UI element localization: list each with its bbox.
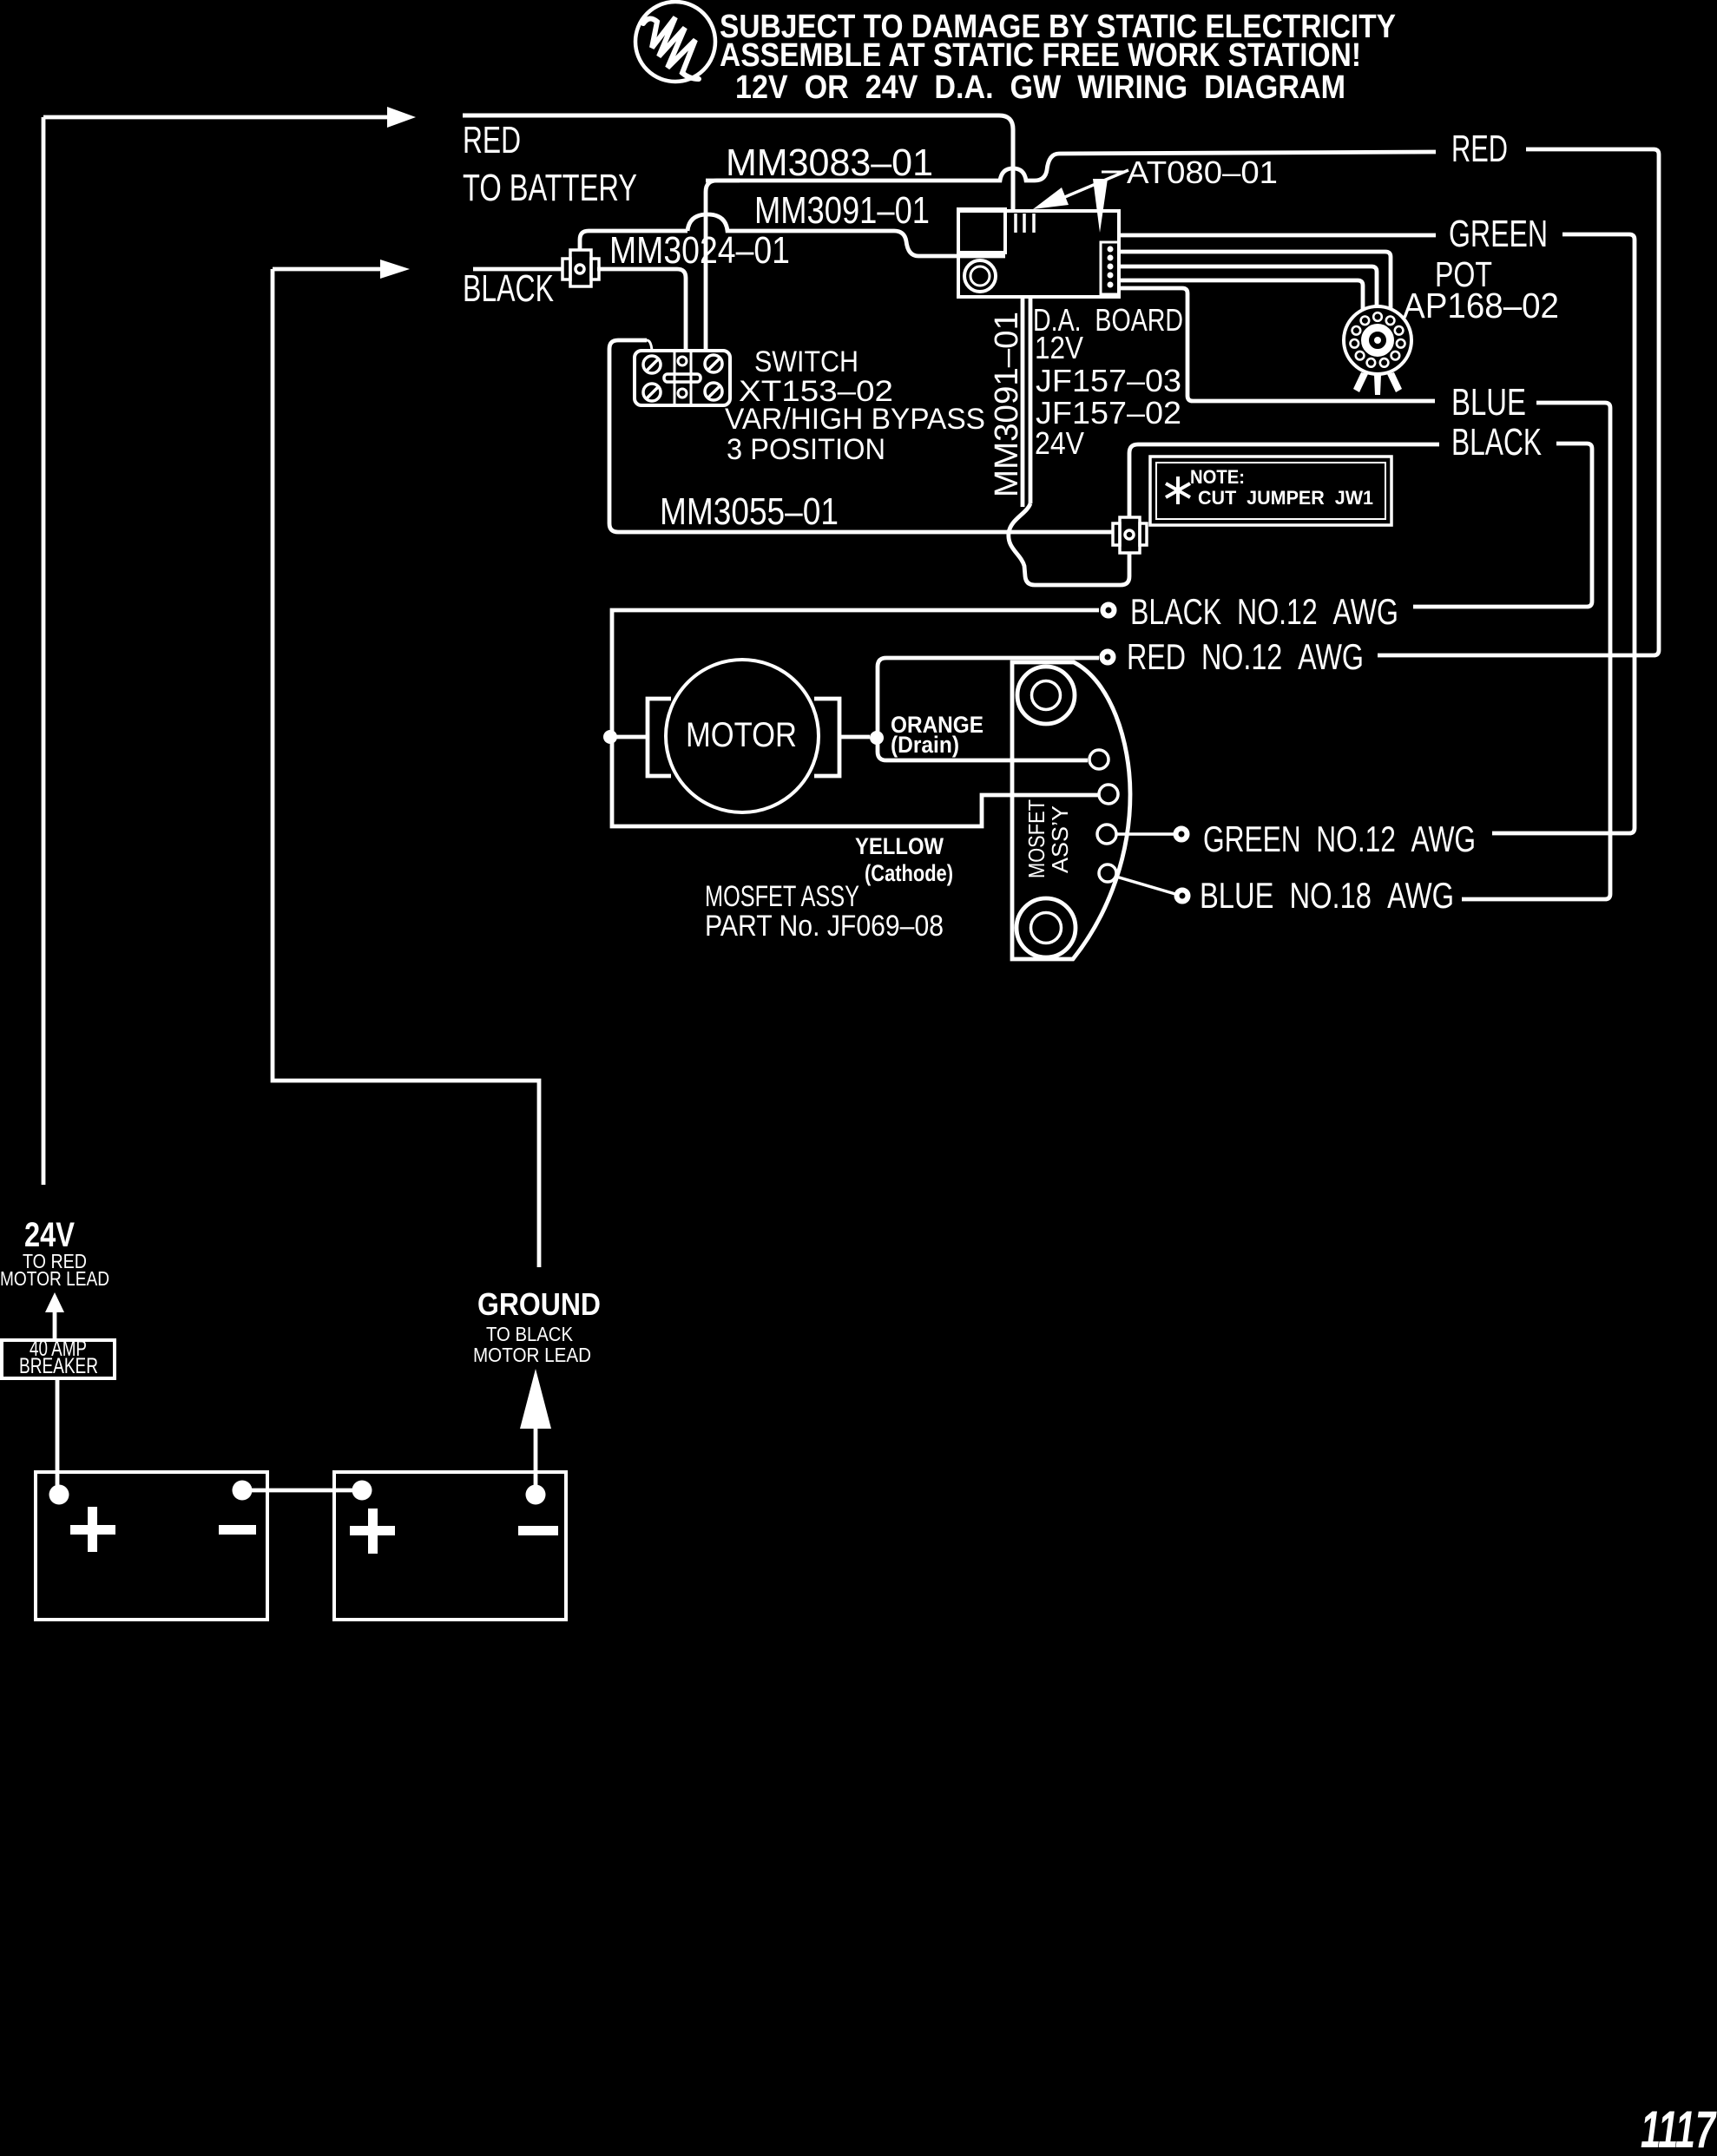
svg-text:12V OR 24V D.A. GW WIRING: 12V OR 24V D.A. GW WIRING DIAGRAM — [735, 69, 1345, 106]
svg-text:TO BATTERY: TO BATTERY — [463, 167, 637, 209]
svg-text:12V: 12V — [1035, 330, 1083, 365]
svg-text:AP168–02: AP168–02 — [1403, 286, 1559, 325]
svg-text:TO BLACK: TO BLACK — [486, 1323, 574, 1345]
svg-text:MM3024–01: MM3024–01 — [609, 229, 790, 272]
svg-text:CUT JUMPER JW1: CUT JUMPER JW1 — [1198, 487, 1373, 509]
svg-text:BLACK: BLACK — [1451, 421, 1542, 463]
svg-text:MM3055–01: MM3055–01 — [660, 490, 839, 533]
svg-text:JF157–03: JF157–03 — [1036, 363, 1181, 398]
svg-text:BLACK: BLACK — [463, 267, 554, 310]
svg-text:24V: 24V — [24, 1216, 75, 1254]
svg-text:MM3083–01: MM3083–01 — [726, 141, 933, 184]
svg-text:RED NO.12 AWG: RED NO.12 AWG — [1127, 636, 1364, 677]
svg-text:BLUE: BLUE — [1451, 381, 1526, 424]
svg-text:ASSEMBLE AT STATIC FREE WORK S: ASSEMBLE AT STATIC FREE WORK STATION! — [720, 37, 1361, 74]
svg-text:ASS’Y: ASS’Y — [1047, 805, 1073, 873]
svg-text:SWITCH: SWITCH — [754, 345, 858, 378]
svg-text:(Cathode): (Cathode) — [865, 860, 953, 886]
svg-text:24V: 24V — [1035, 425, 1084, 461]
svg-text:MOTOR LEAD: MOTOR LEAD — [473, 1344, 591, 1366]
svg-text:RED: RED — [1451, 128, 1508, 170]
svg-text:MOTOR: MOTOR — [686, 716, 797, 754]
svg-text:(Drain): (Drain) — [891, 732, 959, 758]
svg-text:NOTE:: NOTE: — [1190, 466, 1245, 488]
svg-text:AT080–01: AT080–01 — [1127, 154, 1278, 190]
svg-text:BLACK NO.12 AWG: BLACK NO.12 AWG — [1130, 591, 1398, 632]
svg-text:BLUE NO.18 AWG: BLUE NO.18 AWG — [1200, 875, 1454, 916]
svg-text:YELLOW: YELLOW — [855, 833, 944, 859]
svg-text:MOTOR LEAD: MOTOR LEAD — [0, 1267, 109, 1290]
svg-text:VAR/HIGH BYPASS: VAR/HIGH BYPASS — [725, 403, 985, 436]
svg-text:GREEN: GREEN — [1449, 213, 1548, 255]
svg-text:MOSFET ASSY: MOSFET ASSY — [705, 880, 859, 913]
svg-text:MOSFET: MOSFET — [1023, 799, 1049, 878]
svg-text:PART No. JF069–08: PART No. JF069–08 — [705, 910, 944, 943]
svg-text:BREAKER: BREAKER — [19, 1354, 98, 1378]
svg-text:MM3091–01: MM3091–01 — [989, 312, 1025, 497]
svg-text:1117: 1117 — [1641, 2100, 1717, 2156]
svg-text:GREEN NO.12 AWG: GREEN NO.12 AWG — [1203, 818, 1476, 859]
svg-text:GROUND: GROUND — [477, 1286, 601, 1322]
svg-text:RED: RED — [463, 119, 521, 161]
svg-text:3 POSITION: 3 POSITION — [727, 433, 885, 466]
svg-text:MM3091–01: MM3091–01 — [754, 189, 930, 232]
